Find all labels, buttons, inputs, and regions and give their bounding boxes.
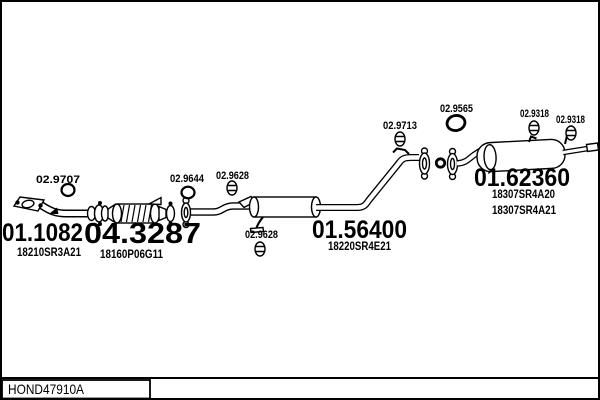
fitting-number-hanger-top: 02.9628: [216, 170, 249, 182]
part-number-front-pipe: 01.1082: [2, 219, 83, 247]
front-flange-bolt: [38, 203, 42, 207]
tailpipe-inner: [563, 149, 588, 153]
rear-pipe-tube-inner: [316, 158, 419, 208]
rubber-hanger-icon: [255, 242, 265, 256]
joint-bolt: [169, 202, 173, 206]
centre-muffler-left-cap: [250, 197, 259, 217]
fitting-number-hanger-bottom: 02.9628: [245, 229, 278, 241]
centre-muffler-body: [254, 197, 316, 217]
drawing-code: HOND47910A: [8, 381, 85, 397]
rubber-hanger-icon: [395, 132, 405, 146]
part-number-labels: 01.1082 04.3287 01.56400 01.62360 18210S…: [2, 103, 585, 261]
rubber-hanger-icon: [529, 121, 539, 135]
exhaust-diagram-canvas: 01.1082 04.3287 01.56400 01.62360 18210S…: [0, 0, 600, 400]
flange-opening: [423, 158, 427, 169]
fitting-number-hanger-rear-2: 02.9318: [556, 114, 585, 126]
fitting-number-hanger-rear-pipe: 02.9713: [383, 120, 417, 132]
gasket-ring-icon: [446, 114, 467, 132]
oem-number-rear-muffler-alt: 18307SR4A21: [492, 203, 556, 217]
joint-bolt: [98, 201, 102, 205]
hanger-rod: [257, 217, 264, 229]
part-number-catalyst: 04.3287: [84, 218, 201, 250]
tailpipe-tip: [587, 143, 599, 152]
rubber-hanger-icon: [566, 126, 576, 140]
flange-opening: [184, 208, 188, 218]
fitting-number-gasket-rear: 02.9565: [440, 103, 473, 115]
oem-number-catalyst: 18160P06G11: [100, 247, 163, 261]
joint-donut-gasket: [436, 159, 444, 167]
hanger-pin: [393, 149, 409, 155]
fitting-number-gasket-front: 02.9707: [36, 174, 80, 186]
oem-number-front-pipe: 18210SR3A21: [17, 245, 81, 259]
exhaust-system-diagram-page: 01.1082 04.3287 01.56400 01.62360 18210S…: [0, 0, 600, 400]
centre-muffler-drawing: [182, 197, 321, 233]
oem-number-rear-muffler: 18307SR4A20: [492, 187, 555, 201]
flange-opening: [451, 159, 455, 170]
rear-pipe-drawing: [316, 148, 481, 208]
gasket-ring-icon: [182, 187, 195, 199]
front-flange-bolt: [15, 200, 19, 204]
cat-heat-shield-tab: [149, 198, 161, 205]
fitting-number-hanger-rear-1: 02.9318: [520, 108, 549, 120]
oem-number-centre-muffler: 18220SR4E21: [328, 239, 391, 253]
fitting-number-gasket-centre: 02.9644: [170, 173, 205, 185]
rubber-hanger-icon: [227, 181, 237, 195]
title-block: HOND47910A: [1, 378, 599, 399]
